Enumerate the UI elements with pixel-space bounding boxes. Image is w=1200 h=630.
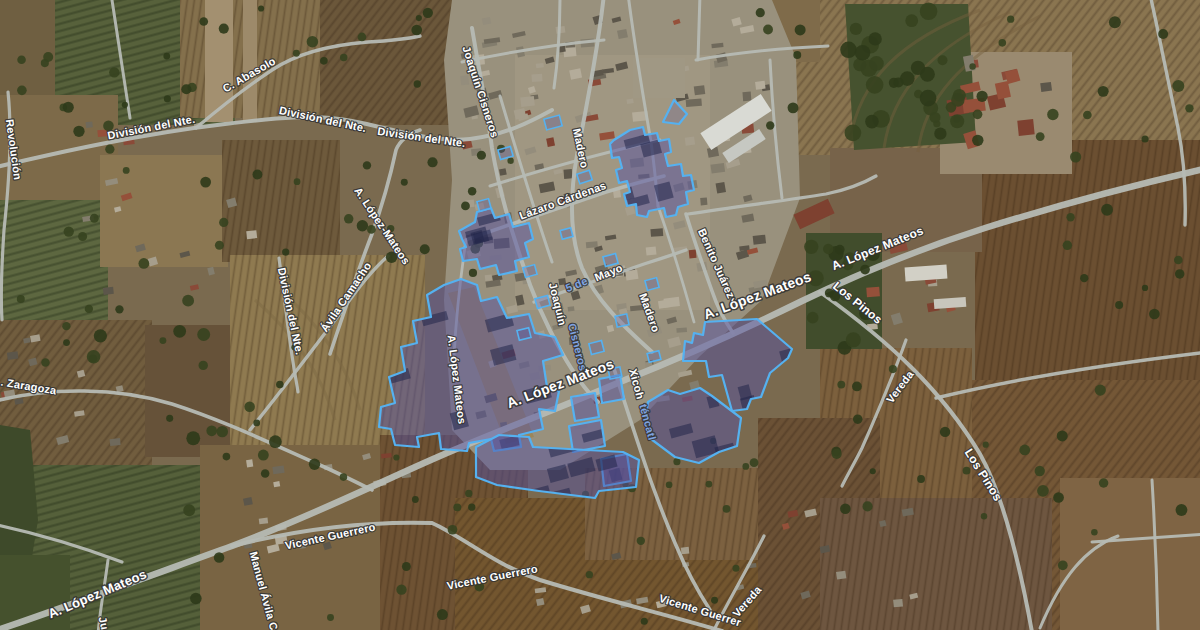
- building: [700, 197, 707, 205]
- tree: [750, 458, 759, 467]
- tree: [465, 490, 472, 497]
- tree: [1099, 478, 1109, 488]
- building-outline[interactable]: [647, 351, 661, 363]
- tree: [199, 361, 208, 370]
- building: [905, 265, 948, 282]
- building: [272, 465, 284, 474]
- tree: [63, 339, 70, 346]
- tree: [1174, 256, 1183, 265]
- tree: [258, 450, 269, 461]
- tree: [983, 442, 989, 448]
- tree: [850, 23, 862, 35]
- tree: [756, 8, 765, 17]
- building: [273, 481, 280, 487]
- map-canvas: RevoluciónC. AbasoloDivisión del Nte.Div…: [0, 0, 1200, 630]
- tree: [832, 449, 842, 459]
- tree: [468, 187, 476, 195]
- tree: [64, 226, 74, 236]
- tree: [1095, 385, 1106, 396]
- tree: [17, 86, 27, 96]
- tree: [860, 265, 870, 275]
- tree: [219, 24, 229, 34]
- building: [650, 228, 663, 237]
- tree: [1019, 445, 1030, 456]
- tree: [1035, 466, 1045, 476]
- building: [753, 235, 766, 245]
- building: [685, 137, 695, 146]
- tree: [197, 328, 210, 341]
- building-outline[interactable]: [517, 328, 531, 341]
- tree: [164, 95, 171, 102]
- building: [836, 571, 846, 580]
- tree: [1141, 135, 1148, 142]
- tree: [269, 435, 282, 448]
- building: [755, 81, 766, 90]
- building: [742, 92, 751, 102]
- tree: [911, 61, 925, 75]
- tree: [396, 584, 406, 594]
- tree: [742, 463, 749, 470]
- tree: [340, 54, 347, 61]
- tree: [637, 537, 645, 545]
- tree: [411, 25, 422, 36]
- tree: [183, 504, 195, 516]
- tree: [1176, 504, 1188, 516]
- tree: [261, 469, 270, 478]
- building-outline[interactable]: [535, 295, 550, 308]
- dirt-lot: [205, 0, 233, 122]
- building-outline[interactable]: [523, 265, 537, 278]
- tree: [1175, 269, 1184, 278]
- tree: [453, 503, 461, 511]
- tree: [1149, 309, 1160, 320]
- tree: [1057, 430, 1068, 441]
- building-outline[interactable]: [477, 199, 491, 212]
- tree: [85, 305, 93, 313]
- building: [893, 599, 903, 607]
- tree: [998, 39, 1006, 47]
- tree: [930, 112, 941, 123]
- tree: [869, 56, 884, 71]
- building: [866, 287, 880, 297]
- tree: [852, 382, 862, 392]
- tree: [976, 91, 987, 102]
- tree: [845, 124, 862, 141]
- tree: [862, 501, 872, 511]
- tree: [920, 3, 937, 20]
- tree: [905, 14, 918, 27]
- building-outline[interactable]: [560, 228, 573, 240]
- building: [586, 241, 598, 248]
- building: [485, 274, 493, 281]
- tree: [105, 145, 114, 154]
- building: [86, 122, 93, 129]
- tree: [1066, 213, 1074, 221]
- tree: [181, 84, 191, 94]
- tree: [94, 329, 107, 342]
- tree: [920, 90, 937, 107]
- tree: [1053, 492, 1064, 503]
- tree: [1091, 529, 1098, 536]
- field: [1060, 478, 1200, 630]
- road-label: Ju: [97, 615, 111, 630]
- building: [110, 438, 121, 446]
- tree: [893, 77, 903, 87]
- tree: [448, 525, 458, 535]
- tree: [917, 475, 925, 483]
- building: [689, 250, 697, 259]
- tree: [294, 178, 301, 185]
- tree: [402, 562, 411, 571]
- building: [246, 459, 253, 467]
- tree: [416, 15, 422, 21]
- tree: [199, 17, 208, 26]
- tree: [1037, 485, 1049, 497]
- tree: [115, 305, 123, 313]
- tree: [461, 202, 470, 211]
- tree: [357, 220, 368, 231]
- tree: [1101, 204, 1113, 216]
- tree: [793, 51, 801, 59]
- tree: [766, 121, 774, 129]
- tree: [367, 225, 376, 234]
- tree: [62, 322, 70, 330]
- tree: [950, 114, 964, 128]
- tree: [723, 505, 731, 513]
- tree: [427, 157, 437, 167]
- tree: [423, 8, 433, 18]
- tree: [73, 126, 84, 137]
- tree: [477, 151, 486, 160]
- tree: [363, 161, 371, 169]
- tree: [159, 337, 166, 344]
- building: [681, 547, 690, 555]
- tree: [981, 513, 987, 519]
- tree: [258, 5, 264, 11]
- tree: [1083, 111, 1092, 120]
- tree: [469, 269, 477, 277]
- tree: [940, 427, 950, 437]
- tree: [1172, 80, 1184, 92]
- tree: [344, 214, 353, 223]
- tree: [253, 420, 260, 427]
- tree: [186, 431, 200, 445]
- tree: [414, 80, 421, 87]
- building: [563, 169, 572, 179]
- tree: [244, 402, 255, 413]
- building-outline[interactable]: [615, 314, 629, 327]
- field-rows: [222, 140, 340, 262]
- tree: [853, 414, 862, 423]
- tree: [795, 24, 806, 35]
- tree: [282, 248, 289, 255]
- tree: [223, 453, 231, 461]
- building: [520, 96, 535, 107]
- tree: [641, 618, 648, 625]
- tree: [358, 33, 367, 42]
- tree: [190, 593, 202, 605]
- tree: [87, 350, 101, 364]
- tree: [1115, 301, 1123, 309]
- building: [676, 328, 687, 333]
- tree: [507, 157, 513, 163]
- building: [259, 518, 268, 525]
- tree: [412, 496, 419, 503]
- building: [646, 246, 657, 255]
- tree: [214, 552, 224, 562]
- tree: [401, 179, 408, 186]
- tree: [855, 45, 871, 61]
- tree: [182, 295, 194, 307]
- tree: [938, 55, 948, 65]
- tree: [1063, 241, 1072, 250]
- tree: [309, 459, 320, 470]
- building: [694, 85, 706, 95]
- tree: [934, 128, 946, 140]
- tree: [711, 597, 718, 604]
- tree: [823, 244, 833, 254]
- building: [103, 287, 114, 295]
- building: [568, 306, 575, 311]
- tree: [837, 381, 845, 389]
- building: [246, 230, 257, 239]
- tree: [804, 240, 818, 254]
- tree: [846, 332, 861, 347]
- tree: [865, 115, 879, 129]
- building: [716, 182, 726, 193]
- tree: [252, 170, 262, 180]
- tree: [320, 57, 328, 65]
- building-outline[interactable]: [589, 341, 604, 355]
- tree: [90, 214, 99, 223]
- tree: [219, 218, 228, 227]
- tree: [1036, 132, 1045, 141]
- tree: [123, 167, 130, 174]
- tree: [951, 93, 964, 106]
- tree: [215, 241, 224, 250]
- tree: [109, 67, 119, 77]
- tree: [1070, 151, 1081, 162]
- tree: [17, 295, 25, 303]
- tree: [1109, 16, 1121, 28]
- tree: [1185, 104, 1193, 112]
- tree: [217, 426, 228, 437]
- tree: [870, 468, 876, 474]
- tree: [963, 467, 971, 475]
- building: [1040, 82, 1052, 92]
- tree: [706, 481, 713, 488]
- tree: [138, 258, 149, 269]
- tree: [327, 614, 334, 621]
- tree: [840, 42, 857, 59]
- tree: [173, 325, 186, 338]
- road: [698, 0, 700, 60]
- building: [7, 351, 19, 360]
- tree: [973, 110, 983, 120]
- building: [686, 98, 702, 107]
- tree: [586, 571, 593, 578]
- tree: [840, 503, 851, 514]
- building-outline[interactable]: [645, 278, 659, 291]
- tree: [420, 244, 430, 254]
- tree: [869, 32, 882, 45]
- tree: [78, 232, 87, 241]
- tree: [788, 102, 799, 113]
- tree: [835, 245, 845, 255]
- building: [460, 75, 469, 85]
- tree: [1058, 560, 1068, 570]
- tree: [17, 55, 26, 64]
- tree: [122, 102, 128, 108]
- tree: [732, 565, 739, 572]
- tree: [206, 425, 217, 436]
- tree: [807, 312, 819, 324]
- tree: [468, 504, 475, 511]
- building: [531, 74, 542, 82]
- tree: [1007, 15, 1014, 22]
- dirt-lot: [243, 0, 257, 122]
- tree: [63, 102, 74, 113]
- tree: [889, 365, 897, 373]
- tree: [200, 177, 211, 188]
- tree: [1158, 29, 1168, 39]
- tree: [340, 473, 348, 481]
- building: [1017, 119, 1034, 136]
- tree: [41, 358, 49, 366]
- tree: [763, 25, 773, 35]
- tree: [437, 609, 448, 620]
- tree: [1080, 274, 1088, 282]
- satellite-map-viewport[interactable]: RevoluciónC. AbasoloDivisión del Nte.Div…: [0, 0, 1200, 630]
- building: [499, 168, 507, 176]
- tree: [1142, 285, 1148, 291]
- tree: [1098, 86, 1109, 97]
- tree: [43, 52, 53, 62]
- tree: [293, 50, 300, 57]
- tree: [969, 63, 975, 69]
- tree: [166, 415, 173, 422]
- tree: [393, 454, 399, 460]
- tree: [276, 381, 284, 389]
- tree: [163, 53, 170, 60]
- tree: [866, 76, 884, 94]
- tree: [1047, 109, 1058, 120]
- tree: [307, 36, 319, 48]
- tree: [972, 135, 983, 146]
- tree: [666, 481, 673, 488]
